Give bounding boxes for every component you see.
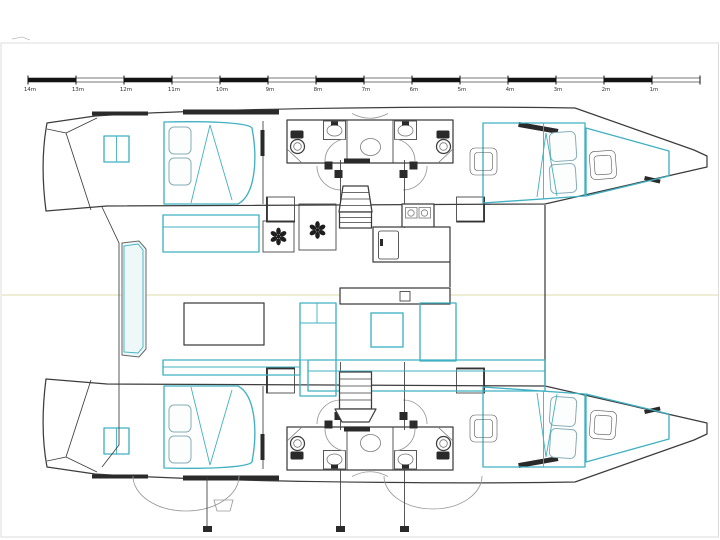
stairs-aft: [335, 372, 376, 422]
scale-label: 14m: [24, 87, 36, 93]
scale-segment: [28, 78, 76, 82]
scale-segment: [604, 78, 652, 82]
scale-label: 13m: [72, 87, 84, 93]
chart-table: [184, 303, 264, 345]
scale-label: 1m: [650, 87, 659, 93]
galley-counter: [373, 227, 450, 287]
settee-port: [163, 215, 259, 252]
settee-strip: [163, 360, 300, 375]
floorplan-svg: 14m13m12m11m10m9m8m7m6m5m4m3m2m1m: [0, 0, 720, 540]
scale-segment: [124, 78, 172, 82]
scale-segment: [460, 78, 508, 82]
corner-mark: [12, 37, 30, 40]
catamaran-floorplan: 14m13m12m11m10m9m8m7m6m5m4m3m2m1m: [0, 0, 720, 540]
scale-segment: [76, 78, 124, 82]
stairs-forward: [339, 186, 372, 228]
scale-label: 8m: [314, 87, 323, 93]
scale-bar: 14m13m12m11m10m9m8m7m6m5m4m3m2m1m: [24, 76, 700, 94]
cockpit-arc: [133, 476, 239, 511]
scale-label: 11m: [168, 87, 180, 93]
transom-step: [214, 500, 233, 511]
table-with-symbol: [299, 204, 336, 250]
scale-segment: [508, 78, 556, 82]
scale-label: 2m: [602, 87, 611, 93]
scale-label: 9m: [266, 87, 275, 93]
scale-segment: [172, 78, 220, 82]
scale-segment: [412, 78, 460, 82]
scale-segment: [220, 78, 268, 82]
scale-label: 4m: [506, 87, 515, 93]
port-hull: [43, 107, 707, 228]
scale-segment: [316, 78, 364, 82]
scale-label: 6m: [410, 87, 419, 93]
starboard-hull: [43, 362, 707, 483]
scale-segment: [364, 78, 412, 82]
cockpit-bench: [122, 241, 146, 357]
scale-label: 3m: [554, 87, 563, 93]
scale-label: 12m: [120, 87, 132, 93]
saloon-table: [371, 313, 403, 347]
fridge-icon: [379, 231, 399, 259]
table-with-symbol: [263, 221, 294, 252]
galley-island: [340, 288, 450, 304]
scale-segment: [652, 78, 700, 82]
scale-label: 10m: [216, 87, 228, 93]
storage-cabinet: [300, 303, 336, 396]
scale-label: 7m: [362, 87, 371, 93]
scale-segment: [268, 78, 316, 82]
scale-segment: [556, 78, 604, 82]
scale-label: 5m: [458, 87, 467, 93]
